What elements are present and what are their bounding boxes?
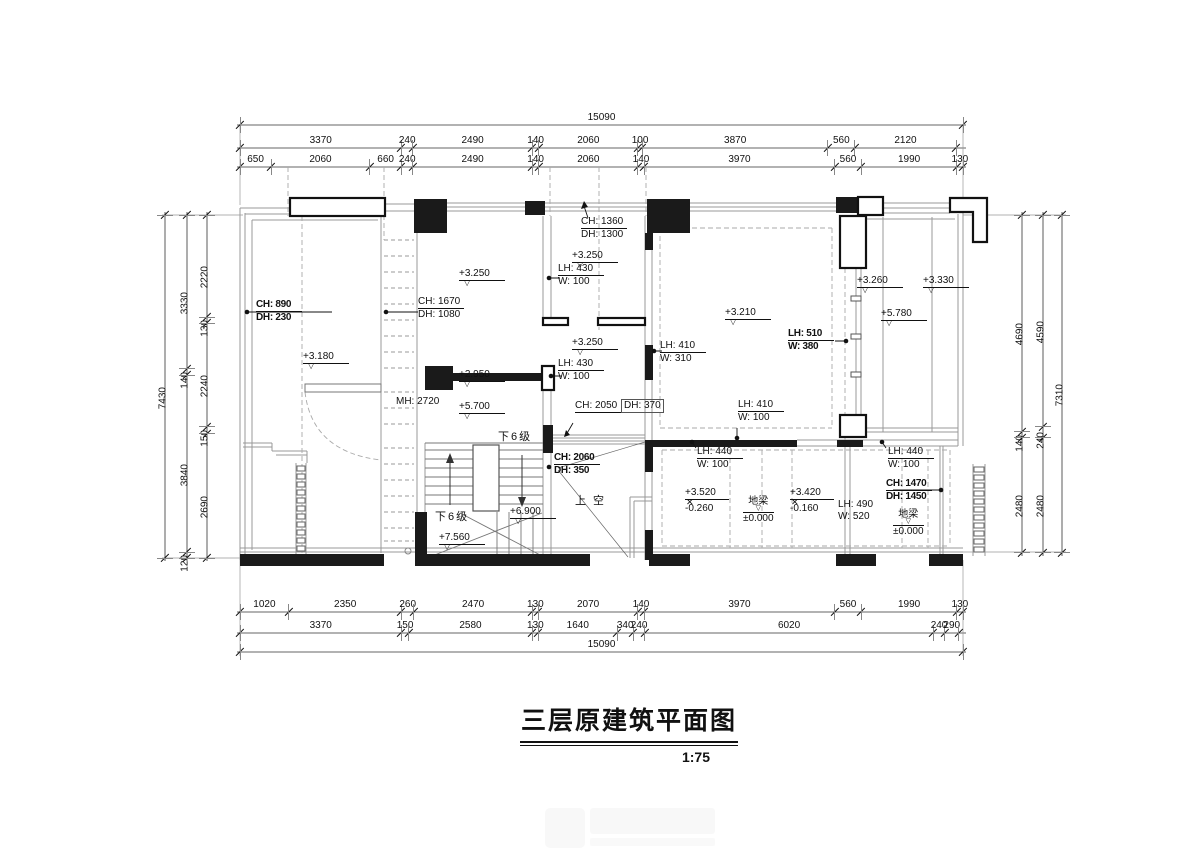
dim-extension (412, 159, 413, 175)
dim-extension (179, 552, 195, 553)
dim-value: 2060 (577, 154, 599, 165)
dim-value: 3970 (728, 154, 750, 165)
dim-extension (861, 159, 862, 175)
level-mark-v3250c: +3.250▽ (572, 337, 618, 350)
dim-value: 2470 (462, 599, 484, 610)
dim-extension (1035, 552, 1051, 553)
floorplan-canvas: 1509033702402490140206010038705602120650… (0, 0, 1200, 859)
dim-extension (240, 604, 241, 620)
dim-value: 2350 (334, 599, 356, 610)
level-mark-v7560: +7.560▽ (439, 532, 485, 545)
dim-extension (179, 215, 195, 216)
dim-extension (1054, 215, 1070, 216)
dim-extension (963, 644, 964, 660)
dim-extension (963, 604, 964, 620)
dim-extension (199, 215, 215, 216)
dim-extension (369, 159, 370, 175)
annotation-lh410b: LH: 410W: 100 (738, 399, 784, 424)
dim-extension (413, 604, 414, 620)
annotation-lh510: LH: 510W: 380 (788, 328, 834, 353)
level-mark-v3260: +3.260▽ (857, 275, 903, 288)
dim-extension (538, 625, 539, 641)
dim-value: 2240 (200, 375, 211, 397)
dim-extension (199, 433, 215, 434)
dim-extension (179, 368, 195, 369)
dim-extension (271, 159, 272, 175)
dim-extension (1054, 552, 1070, 553)
dim-value: 3370 (310, 620, 332, 631)
dim-extension (240, 644, 241, 660)
dim-value: 2480 (1036, 495, 1047, 517)
dim-value: 2480 (1015, 495, 1026, 517)
annotation-ch1470: CH: 1470DH: 1450 (886, 478, 932, 503)
dim-value: 2490 (461, 154, 483, 165)
dim-extension (199, 558, 215, 559)
dim-extension (199, 317, 215, 318)
dim-value: 660 (377, 154, 394, 165)
level-mark-l3420: +3.420✕-0.160 (790, 487, 834, 514)
annotation-lh430b: LH: 430W: 100 (558, 358, 604, 383)
dim-extension (157, 215, 173, 216)
level-mark-v3330: +3.330▽ (923, 275, 969, 288)
dim-extension (834, 159, 835, 175)
dim-extension (408, 625, 409, 641)
label-void_label: 上 空 (575, 492, 606, 508)
annotation-ch2050: CH: 2050DH: 370 (575, 399, 664, 413)
level-mark-v3250a: +3.250▽ (459, 268, 505, 281)
dim-extension (644, 159, 645, 175)
annotation-ch1670: CH: 1670DH: 1080 (418, 296, 464, 321)
dim-value: 1990 (898, 154, 920, 165)
dim-extension (1035, 426, 1051, 427)
annotation-ch2060: CH: 2060DH: 350 (554, 452, 600, 477)
watermark (545, 808, 715, 856)
dim-extension (1014, 431, 1030, 432)
dim-extension (538, 159, 539, 175)
dim-extension (644, 604, 645, 620)
level-mark-v6900: +6.900▽ (510, 506, 556, 519)
watermark-logo (545, 808, 585, 848)
dim-extension (179, 558, 195, 559)
dim-value: 3330 (180, 292, 191, 314)
dim-extension (834, 604, 835, 620)
ground-beam-mark-dl2: 地梁▽±0.000 (893, 505, 924, 537)
dim-extension (157, 558, 173, 559)
dim-value: 15090 (588, 639, 616, 650)
dim-value: 15090 (588, 112, 616, 123)
dim-value: 2060 (577, 135, 599, 146)
dim-value: 4690 (1015, 323, 1026, 345)
dim-value: 7430 (158, 387, 169, 409)
dim-extension (240, 140, 241, 156)
dim-value: 2060 (309, 154, 331, 165)
watermark-text-blocks (590, 808, 715, 846)
dim-extension (199, 426, 215, 427)
level-mark-v5700: +5.700▽ (459, 401, 505, 414)
dim-value: 560 (840, 154, 857, 165)
dim-extension (1014, 437, 1030, 438)
dim-value: 2120 (894, 135, 916, 146)
dim-extension (1035, 215, 1051, 216)
annotation-lh410a: LH: 410W: 310 (660, 340, 706, 365)
dim-extension (958, 625, 959, 641)
dim-value: 2690 (200, 496, 211, 518)
drawing-title: 三层原建筑平面图 (520, 701, 738, 743)
dim-value: 560 (840, 599, 857, 610)
label-down6_upper: 下6级 (498, 428, 532, 444)
level-mark-l3520: +3.520✕-0.260 (685, 487, 729, 514)
annotation-ch890: CH: 890DH: 230 (256, 299, 302, 324)
level-mark-v3210: +3.210▽ (725, 307, 771, 320)
dim-value: 2220 (200, 266, 211, 288)
level-mark-v3250b: +3.250▽ (572, 250, 618, 263)
level-mark-v5780: +5.780▽ (881, 308, 927, 321)
annotation-ch1360: CH: 1360DH: 1300 (581, 216, 627, 241)
dim-extension (199, 323, 215, 324)
title-underline (520, 745, 738, 746)
dim-extension (1014, 552, 1030, 553)
dim-value: 3870 (724, 135, 746, 146)
dim-extension (644, 625, 645, 641)
dim-value: 2490 (461, 135, 483, 146)
dim-value: 1020 (253, 599, 275, 610)
dim-value: 2580 (459, 620, 481, 631)
dim-extension (827, 140, 828, 156)
title-block: 三层原建筑平面图 1:75 (520, 701, 738, 765)
dim-value: 4590 (1036, 321, 1047, 343)
dim-extension (179, 375, 195, 376)
dim-extension (288, 604, 289, 620)
dim-extension (963, 117, 964, 133)
dim-value: 7310 (1055, 384, 1066, 406)
dim-value: 1640 (567, 620, 589, 631)
label-down6_lower: 下6级 (435, 508, 469, 524)
dim-extension (1035, 437, 1051, 438)
annotation-lh440a: LH: 440W: 100 (697, 446, 743, 471)
drawing-scale: 1:75 (520, 749, 738, 765)
dim-value: 3970 (728, 599, 750, 610)
dim-extension (240, 159, 241, 175)
annotation-mh2720: MH: 2720 (396, 396, 442, 408)
annotation-lh440b: LH: 440W: 100 (888, 446, 934, 471)
dim-value: 6020 (778, 620, 800, 631)
ground-beam-mark-dl1: 地梁▽±0.000 (743, 492, 774, 524)
dim-extension (240, 117, 241, 133)
dim-value: 3840 (180, 464, 191, 486)
level-mark-v2950: +2.950▽ (459, 369, 505, 382)
dim-extension (240, 625, 241, 641)
dim-value: 650 (247, 154, 264, 165)
dim-extension (963, 159, 964, 175)
dim-value: 1990 (898, 599, 920, 610)
dim-value: 560 (833, 135, 850, 146)
dim-value: 2070 (577, 599, 599, 610)
level-mark-v3180: +3.180▽ (303, 351, 349, 364)
dim-extension (538, 604, 539, 620)
dim-extension (861, 604, 862, 620)
dim-extension (1014, 215, 1030, 216)
dim-value: 3370 (310, 135, 332, 146)
annotation-lh490: LH: 490W: 520 (838, 499, 884, 523)
